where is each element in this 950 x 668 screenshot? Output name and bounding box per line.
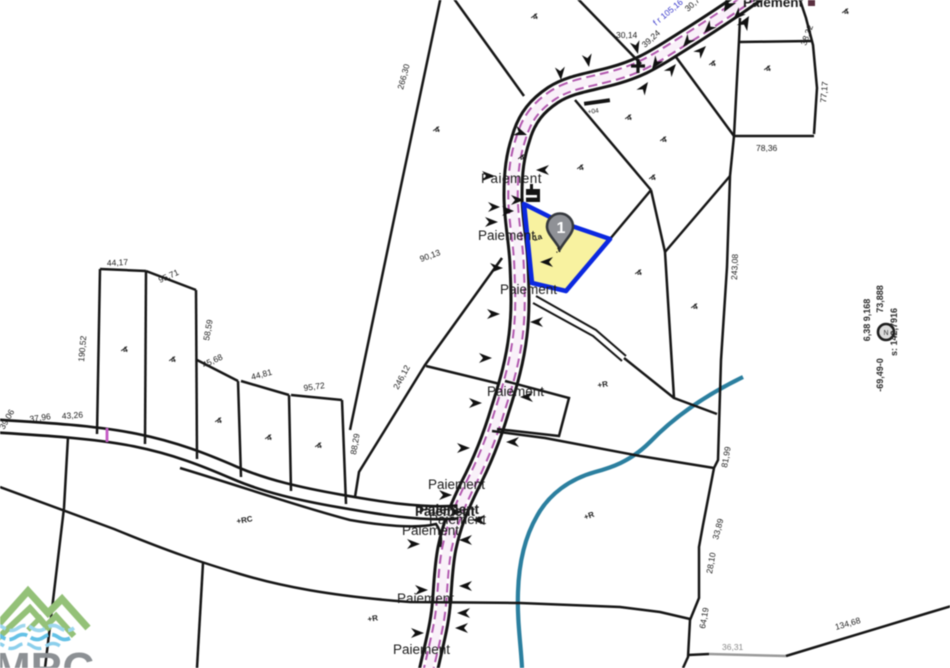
svg-text:Paiement: Paiement bbox=[500, 282, 557, 297]
svg-text:+R: +R bbox=[597, 379, 609, 390]
svg-text:44,17: 44,17 bbox=[107, 257, 129, 268]
svg-text:N: N bbox=[883, 330, 888, 337]
svg-text:Paiement: Paiement bbox=[478, 228, 535, 243]
svg-text:243,08: 243,08 bbox=[729, 253, 740, 280]
svg-text:73,888: 73,888 bbox=[875, 285, 885, 313]
svg-text:MRC: MRC bbox=[0, 644, 94, 668]
svg-text:Paiement: Paiement bbox=[397, 591, 454, 606]
svg-text:s: 142,7916: s: 142,7916 bbox=[889, 308, 899, 356]
svg-text:77,17: 77,17 bbox=[818, 81, 830, 103]
svg-text:-69,49-0: -69,49-0 bbox=[875, 358, 885, 392]
svg-text:Paiement: Paiement bbox=[487, 384, 544, 399]
svg-text:Paiement: Paiement bbox=[402, 523, 459, 538]
svg-text:Paiement: Paiement bbox=[393, 642, 450, 657]
svg-text:78,36: 78,36 bbox=[756, 143, 778, 153]
svg-text:43,26: 43,26 bbox=[61, 410, 83, 421]
svg-text:Paiement: Paiement bbox=[743, 0, 804, 10]
svg-text:1: 1 bbox=[557, 220, 566, 237]
svg-text:6,38 9,168: 6,38 9,168 bbox=[862, 299, 872, 342]
svg-text:36,31: 36,31 bbox=[722, 642, 744, 652]
svg-text:Paiement: Paiement bbox=[481, 171, 542, 186]
svg-text:30,14: 30,14 bbox=[616, 30, 638, 40]
svg-text:Paiement: Paiement bbox=[428, 477, 485, 492]
svg-text:+R: +R bbox=[367, 613, 379, 624]
